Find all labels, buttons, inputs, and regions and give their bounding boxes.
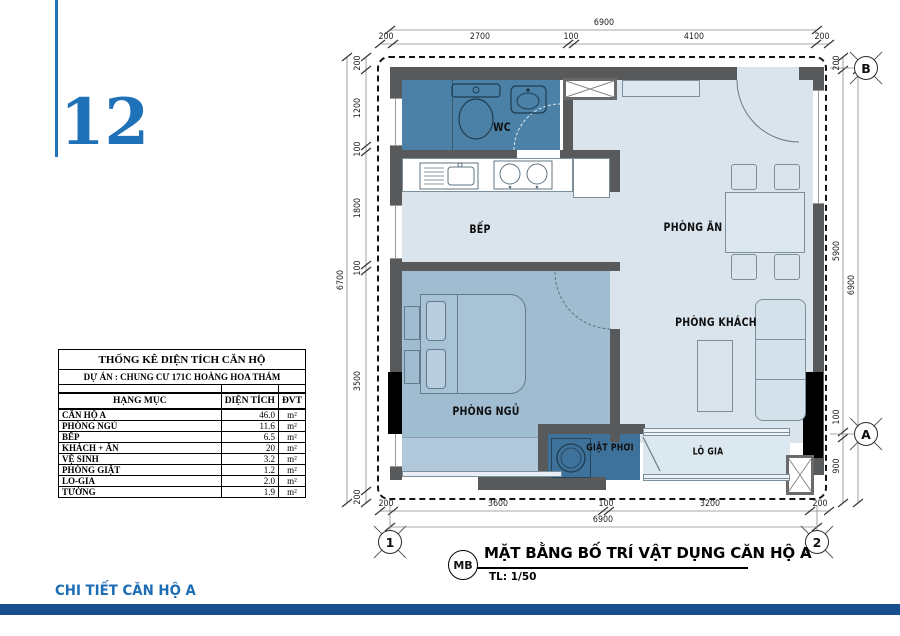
dim-label: 200 <box>814 32 829 42</box>
shaft-box-bottom-right <box>786 455 814 495</box>
dining-chair <box>774 254 800 280</box>
column-left <box>388 372 402 434</box>
table-row: KHÁCH + ĂN20m² <box>59 443 306 454</box>
nightstand <box>404 306 420 340</box>
dining-table <box>725 192 805 253</box>
dim-label: 200 <box>378 499 393 509</box>
shaft-box-top <box>563 78 617 100</box>
window-right-dining <box>813 90 824 204</box>
sofa-cushion-line <box>756 339 805 340</box>
dim-label: 200 <box>353 55 363 70</box>
room-label-laundry: GIẶT PHƠI <box>586 443 633 454</box>
sheet-number: 12 <box>60 88 149 158</box>
wall-kitchen-bedroom <box>396 262 620 271</box>
col-header-area: DIỆN TÍCH <box>221 393 278 409</box>
dim-label: 2700 <box>470 32 490 42</box>
dim-label: 900 <box>832 458 842 473</box>
dim-label: 200 <box>812 499 827 509</box>
pillow <box>426 301 446 341</box>
bed-fold-line <box>457 295 458 393</box>
wall-wc-kitchen-left <box>396 150 517 158</box>
dim-label: 1200 <box>353 98 363 118</box>
window-left-wc <box>390 98 402 146</box>
dim-label: 4100 <box>684 32 704 42</box>
title-underline <box>477 567 748 569</box>
room-fill-wc <box>402 80 560 150</box>
entrance-gap <box>737 67 799 80</box>
dim-label: 100 <box>353 260 363 275</box>
wc-divider-line <box>452 80 453 150</box>
drawing-tag-badge: MB <box>448 550 478 580</box>
fridge <box>573 158 610 198</box>
nightstand <box>404 350 420 384</box>
table-title: THỐNG KÊ DIỆN TÍCH CĂN HỘ <box>59 350 306 370</box>
kitchen-counter <box>402 158 573 192</box>
area-statistics-table: THỐNG KÊ DIỆN TÍCH CĂN HỘ DỰ ÁN : CHUNG … <box>58 349 306 498</box>
sofa-cushion-line <box>756 379 805 380</box>
dim-label: 5900 <box>832 241 842 261</box>
table-row: PHÒNG NGỦ11.6m² <box>59 421 306 432</box>
dim-label: 200 <box>353 489 363 504</box>
table-row: CĂN HỘ A46.0m² <box>59 409 306 421</box>
room-label-bedroom: PHÒNG NGỦ <box>452 404 519 418</box>
loggia-sliding-window <box>643 428 790 436</box>
table-row: LO-GIA2.0m² <box>59 476 306 487</box>
dim-label-overall: 6700 <box>336 270 346 290</box>
pillow <box>426 349 446 389</box>
dim-label: 100 <box>353 141 363 156</box>
sheet-number-rule <box>55 0 58 157</box>
drawing-sheet: 12 THỐNG KÊ DIỆN TÍCH CĂN HỘ DỰ ÁN : CHU… <box>0 0 900 636</box>
wall-laundry-top <box>538 424 645 434</box>
entry-cabinet <box>622 80 700 97</box>
dining-chair <box>731 254 757 280</box>
loggia-railing <box>643 474 790 481</box>
table-row: PHÒNG GIẶT1.2m² <box>59 465 306 476</box>
table-row: BẾP6.5m² <box>59 432 306 443</box>
col-header-item: HẠNG MỤC <box>59 393 222 409</box>
window-left-kitchen <box>390 205 402 259</box>
room-label-kitchen: BẾP <box>469 222 490 236</box>
room-label-wc: WC <box>493 120 511 134</box>
drawing-title: MẶT BẰNG BỐ TRÍ VẬT DỤNG CĂN HỘ A <box>484 544 811 562</box>
dim-label: 100 <box>832 409 842 424</box>
dining-chair <box>731 164 757 190</box>
blank-cell <box>59 385 222 394</box>
room-label-dining: PHÒNG ĂN <box>664 220 723 234</box>
dim-label: 100 <box>598 499 613 509</box>
wall-shaft-side <box>563 100 573 158</box>
dim-label: 100 <box>563 32 578 42</box>
col-header-unit: ĐVT <box>278 393 305 409</box>
room-label-loggia: LÔ GIA <box>693 447 724 458</box>
glazing-line <box>644 432 789 433</box>
dim-label: 3600 <box>488 499 508 509</box>
dining-chair <box>774 164 800 190</box>
grid-marker-a: A <box>854 422 878 446</box>
column-right <box>803 372 823 458</box>
table-row: VỆ SINH3.2m² <box>59 454 306 465</box>
grid-marker-1: 1 <box>378 530 402 554</box>
dim-label: 200 <box>378 32 393 42</box>
dim-label-overall: 6900 <box>847 275 857 295</box>
footer-bar <box>0 604 900 615</box>
window-left-bedroom <box>390 431 402 467</box>
footer-sheet-title: CHI TIẾT CĂN HỘ A <box>55 583 196 599</box>
dim-label: 200 <box>832 55 842 70</box>
dim-label-overall: 6900 <box>593 515 613 525</box>
dim-label: 1800 <box>353 198 363 218</box>
blank-cell <box>221 385 278 394</box>
coffee-table <box>697 340 733 412</box>
room-label-living: PHÒNG KHÁCH <box>675 315 757 329</box>
dim-label: 3500 <box>353 371 363 391</box>
railing-line <box>644 478 789 479</box>
table-subtitle: DỰ ÁN : CHUNG CƯ 171C HOÀNG HOA THÁM <box>59 370 306 385</box>
grid-marker-b: B <box>854 56 878 80</box>
table-row: TƯỜNG1.9m² <box>59 487 306 498</box>
wall-kitchen-dining <box>610 150 620 192</box>
blank-cell <box>278 385 305 394</box>
bedroom-railing <box>402 471 562 477</box>
drawing-scale: TL: 1/50 <box>489 571 536 583</box>
dim-label: 3200 <box>700 499 720 509</box>
wall-top-right <box>799 67 824 80</box>
dim-label-overall: 6900 <box>594 18 614 28</box>
sofa <box>755 299 806 421</box>
